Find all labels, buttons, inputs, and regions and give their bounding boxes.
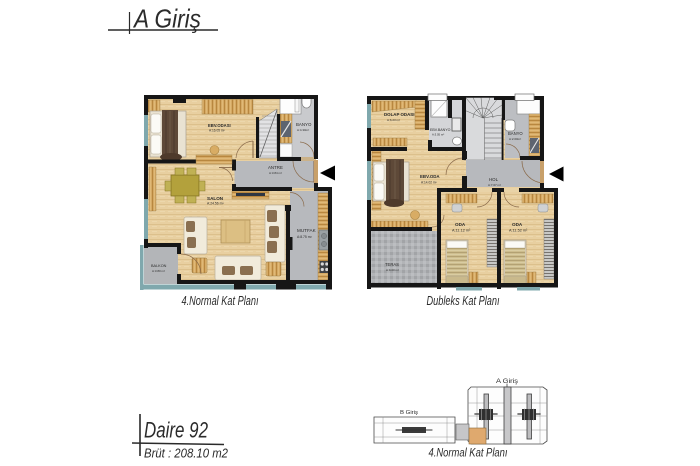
svg-text:DOLAP ODASI: DOLAP ODASI	[384, 112, 414, 117]
svg-text:Dubleks Kat Planı: Dubleks Kat Planı	[427, 294, 500, 308]
svg-text:BANYO: BANYO	[296, 122, 312, 127]
svg-text:A:8.75 m²: A:8.75 m²	[297, 235, 313, 239]
svg-text:MUTFAK: MUTFAK	[297, 228, 317, 233]
svg-text:A:2.00m²: A:2.00m²	[509, 137, 521, 141]
svg-text:ANTRE: ANTRE	[268, 165, 283, 170]
svg-text:A:3.80 m²: A:3.80 m²	[152, 269, 165, 273]
svg-text:ODA: ODA	[512, 222, 523, 227]
svg-text:SALON: SALON	[207, 196, 224, 201]
svg-text:Daire 92: Daire 92	[144, 418, 208, 443]
svg-text:A:9.00 m²: A:9.00 m²	[386, 268, 399, 272]
svg-text:A Giriş: A Giriş	[132, 4, 201, 34]
svg-text:A:3.84 m²: A:3.84 m²	[269, 171, 282, 175]
svg-text:ODA: ODA	[455, 222, 466, 227]
svg-text:4.Normal Kat Planı: 4.Normal Kat Planı	[182, 294, 259, 308]
svg-text:B Giriş: B Giriş	[400, 410, 419, 416]
svg-text:A:11.12 m²: A:11.12 m²	[452, 229, 471, 233]
svg-text:A:16.05 m²: A:16.05 m²	[209, 129, 225, 133]
svg-text:EBV.BANYO: EBV.BANYO	[430, 128, 451, 132]
svg-text:BANYO: BANYO	[508, 131, 523, 136]
svg-text:TERAS: TERAS	[385, 262, 399, 267]
svg-text:A:7.07 m²: A:7.07 m²	[488, 183, 501, 187]
svg-text:EBV.ODASI: EBV.ODASI	[208, 123, 231, 128]
svg-text:BALKON: BALKON	[151, 264, 167, 268]
svg-text:A:3.05 m²: A:3.05 m²	[432, 133, 444, 137]
svg-text:A:11.52 m²: A:11.52 m²	[509, 229, 528, 233]
svg-text:Brüt : 208.10 m2: Brüt : 208.10 m2	[144, 447, 228, 461]
svg-text:A:14.02 m²: A:14.02 m²	[421, 181, 437, 185]
svg-text:EBV.ODA: EBV.ODA	[420, 174, 440, 179]
svg-text:4.Normal Kat Planı: 4.Normal Kat Planı	[429, 448, 508, 460]
svg-text:A:6.23 m²: A:6.23 m²	[387, 118, 400, 122]
svg-text:A:4.30m²: A:4.30m²	[297, 128, 309, 132]
svg-text:HOL: HOL	[489, 177, 499, 182]
svg-text:A:24.56 m²: A:24.56 m²	[207, 202, 224, 206]
